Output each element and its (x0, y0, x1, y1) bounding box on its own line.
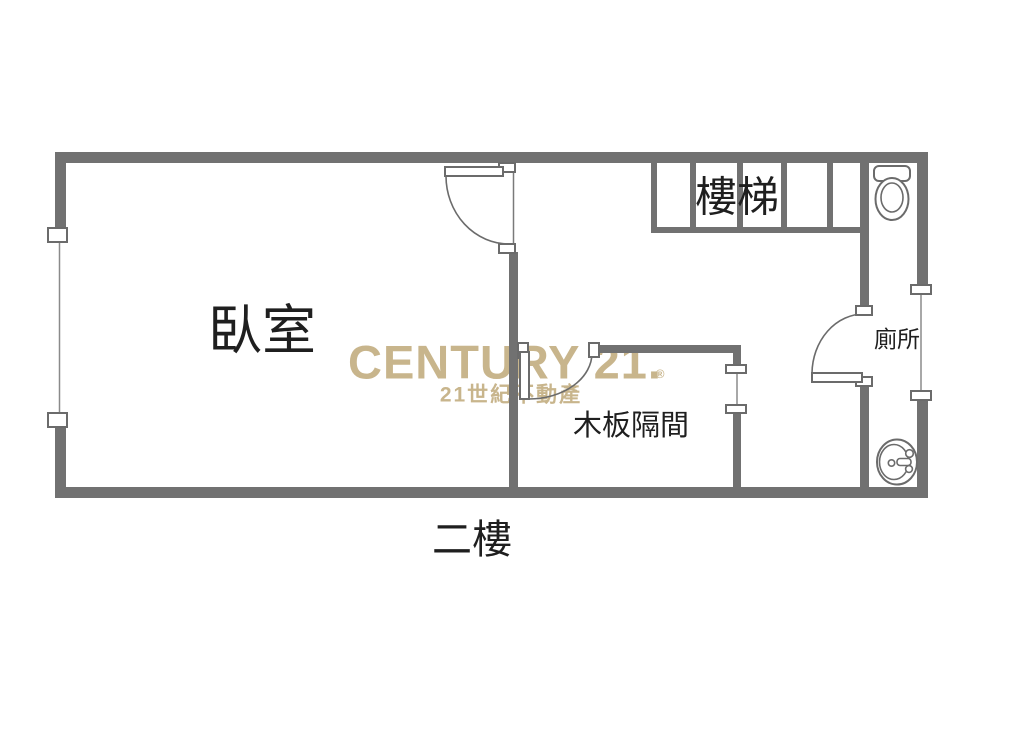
toilet-wall-lower (860, 386, 869, 487)
door-jamb (499, 244, 515, 253)
door-leaf (520, 352, 529, 399)
stair-tread (827, 161, 833, 227)
outer-wall-right-upper (917, 152, 928, 286)
window-marker (48, 413, 67, 427)
partition-room-wall-east-lower (733, 411, 741, 487)
toilet-label: 廁所 (874, 326, 920, 352)
sink-icon (877, 440, 917, 485)
outer-wall-bottom (55, 487, 928, 498)
sink-handle (906, 466, 913, 473)
toilet-wall-upper (860, 163, 869, 308)
stair-tread (781, 161, 787, 227)
outer-wall-right-lower (917, 399, 928, 498)
stairs-label: 樓梯 (695, 174, 779, 221)
sink-faucet (897, 459, 911, 466)
stairs-left-edge (651, 161, 657, 232)
century21-wordmark: CENTURY 21. (348, 336, 662, 389)
toilet-bowl-inner (881, 183, 903, 212)
window-marker (911, 391, 931, 400)
outer-wall-left-lower (55, 427, 66, 498)
wood-partition-label: 木板隔間 (573, 409, 689, 442)
bedroom-partition-wall (509, 252, 518, 487)
outer-wall-left-upper (55, 152, 66, 228)
door-jamb (856, 306, 872, 315)
toilet-icon (874, 166, 910, 220)
door-jamb (589, 343, 599, 357)
registered-mark-icon: ® (656, 367, 665, 381)
floor-label: 二樓 (432, 518, 512, 562)
door-leaf (445, 167, 503, 176)
window-marker (726, 405, 746, 413)
door-leaf (812, 373, 862, 382)
outer-wall-top (55, 152, 928, 163)
partition-room-wall-east-upper (733, 345, 741, 367)
window-marker (726, 365, 746, 373)
floorplan-page: CENTURY 21. ® 21世紀不動產 (0, 0, 1024, 738)
window-marker (911, 285, 931, 294)
stairs-bottom-edge (651, 227, 869, 233)
sink-drain (888, 460, 894, 466)
floorplan-drawing: CENTURY 21. ® 21世紀不動產 (0, 0, 1024, 738)
partition-room-wall-north (596, 345, 741, 353)
bedroom-label: 臥室 (208, 301, 316, 361)
sink-handle (906, 450, 914, 458)
window-marker (48, 228, 67, 242)
